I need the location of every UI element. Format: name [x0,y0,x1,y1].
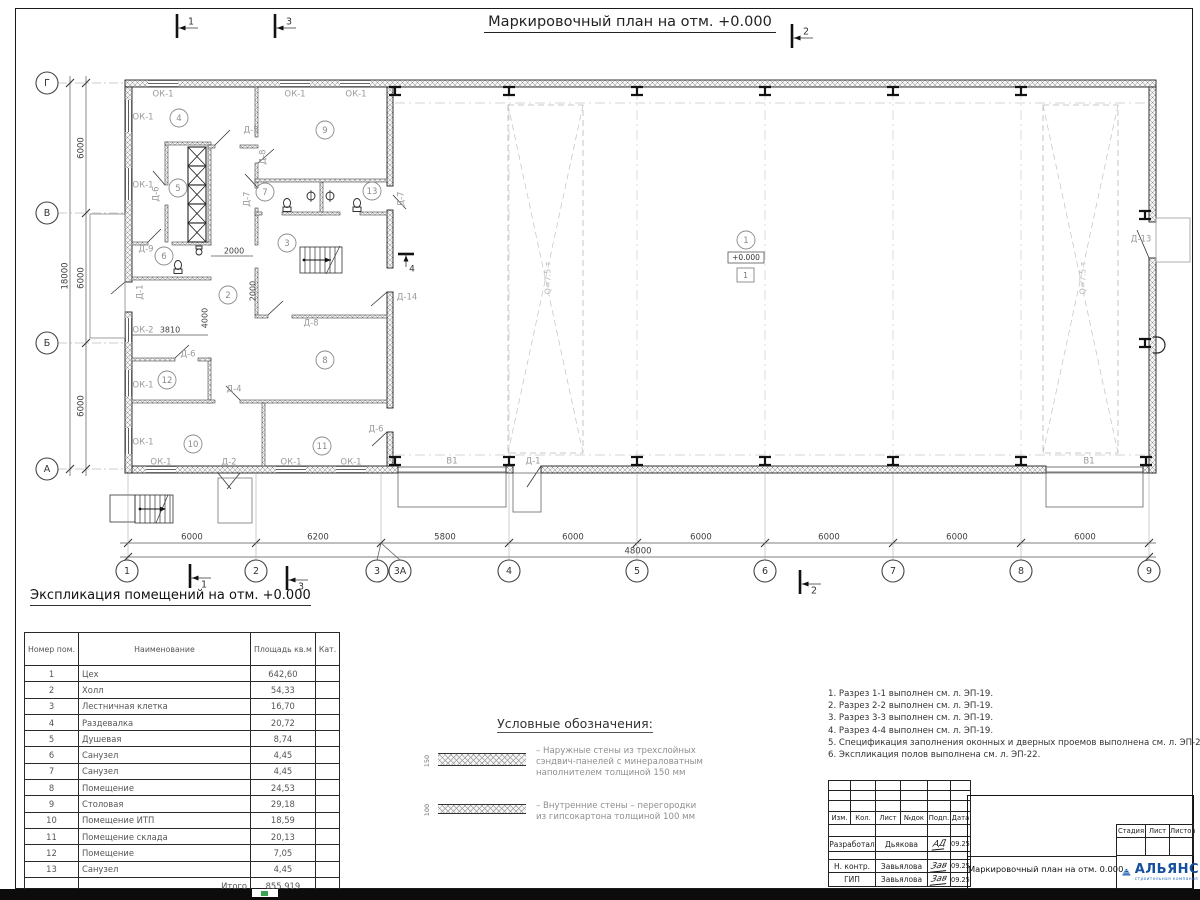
explication-table: Номер пом.НаименованиеПлощадь кв.мКат. 1… [24,632,340,894]
dim-label: 6000 [690,533,712,543]
expl-cell [315,731,339,747]
scan-edge-bar [0,889,1200,900]
opening-label: Д-1 [136,284,146,299]
dimension-lines: 6000620058006000600060006000600048000600… [58,76,1156,561]
expl-cell [315,812,339,828]
section-flag-number: 3 [286,17,292,28]
title-block: Изм.Кол.Лист№докПодп.ДатаРазработалДьяко… [828,780,1192,888]
shower-stall [188,204,206,223]
door-leaf [371,292,387,306]
plan-labels: ОК-1ОК-1ОК-1ОК-1ОК-1ОК-2ОК-1ОК-1ОК-1Д-2О… [132,90,1151,468]
tb-cell [829,791,851,801]
axis-bubble: Г [36,72,58,94]
room-number: 4 [170,109,188,127]
entrance-porch [218,478,252,523]
stair-exterior [110,495,173,523]
stage-header-cell: Лист [1145,825,1169,837]
room-number: 10 [184,435,202,453]
legend-exterior-wall-symbol [438,753,526,766]
interior-wall [360,212,387,215]
expl-cell: Санузел [78,763,250,779]
inner-dim-label: 4000 [201,308,210,328]
expl-cell: 10 [25,812,79,828]
tb-cell [901,801,928,812]
expl-cell: Помещение [78,780,250,796]
axis-bubble: 6 [754,560,776,582]
opening-label: Д-8 [259,149,269,164]
zone-number: 1 [743,271,748,280]
tb-cell [876,781,901,791]
section-flag-number: 2 [811,586,817,597]
expl-cell [315,845,339,861]
axis-bubble-label: 6 [762,566,768,577]
expl-row: 2Холл54,33 [25,682,340,698]
opening-label: Д-7 [397,191,407,206]
expl-row: 12Помещение7,05 [25,845,340,861]
opening-label: ОК-1 [345,90,366,100]
title-block-divider [968,856,1116,857]
interior-wall [255,179,387,182]
expl-cell: Помещение склада [78,828,250,844]
axis-bubble-label: Г [44,78,50,89]
floor-plan-drawing: 6000620058006000600060006000600048000600… [0,0,1200,620]
opening-label: В1 [446,457,457,467]
axis-bubble: 5 [626,560,648,582]
room-number-text: 4 [176,114,181,124]
interior-wall [165,142,168,185]
opening-label: Д-9 [138,245,153,255]
room-number: 3 [278,234,296,252]
window [125,100,132,132]
tb-header-cell: Лист [876,812,901,825]
tb-cell [901,781,928,791]
axis-bubble-label: 1 [124,566,130,577]
door-leaf [111,282,125,294]
expl-cell: 6 [25,747,79,763]
opening-label: Д-6 [368,425,383,435]
room-number-text: 2 [225,291,230,301]
tb-role: Н. контр. [829,860,876,873]
section-flag-number: 1 [188,17,194,28]
door-leaf [153,171,165,185]
tb-cell [829,825,876,837]
expl-cell: 11 [25,828,79,844]
axis-bubble-label: 9 [1146,566,1152,577]
opening-label: ОК-1 [284,90,305,100]
door-leaf [148,229,161,242]
expl-cell [315,714,339,730]
room-number: 8 [316,351,334,369]
company-logo: АЛЬЯНС строительная компания [1116,854,1199,889]
signature: Зав [930,860,949,873]
tb-header-cell: Кол. [851,812,876,825]
axis-bubble-label: 3 [374,566,380,577]
axis-bubble: 3А [389,560,411,582]
tb-cell [928,852,951,860]
expl-header-cell: Номер пом. [25,633,79,666]
exterior-wall [387,292,393,408]
opening-label: Д-13 [1131,235,1152,245]
expl-cell [315,763,339,779]
note-line: 5. Спецификация заполнения оконных и две… [828,737,1198,749]
expl-cell: 4,45 [250,763,315,779]
dim-label: 6200 [307,533,329,543]
axis-bubble: 2 [245,560,267,582]
explication-table-body: 1Цех642,602Холл54,333Лестничная клетка16… [25,666,340,894]
window [280,80,310,87]
opening-label: ОК-1 [150,458,171,468]
sink [307,190,315,202]
crane-capacity-label: Q=7.5 т [1079,261,1088,294]
axis-funnel [381,543,400,560]
expl-cell [315,666,339,682]
expl-cell [315,682,339,698]
toilet [196,246,202,255]
room-number: 13 [363,182,381,200]
opening-label: ОК-1 [132,181,153,191]
axis-bubble: В [36,202,58,224]
section-flag: 1 [177,14,198,38]
interior-wall [208,145,215,148]
interior-wall [208,358,211,403]
axis-bubble-label: 3А [394,566,407,577]
expl-cell: 3 [25,698,79,714]
opening-label: Д-2 [221,458,236,468]
columns [389,87,1152,465]
room-number-text: 11 [317,442,328,452]
expl-row: 13Санузел4,45 [25,861,340,877]
opening-label: Д-1 [525,457,540,467]
window [125,168,132,200]
company-name: АЛЬЯНС [1135,862,1199,877]
exterior-wall [387,87,393,186]
axis-bubble-label: 2 [253,566,259,577]
expl-cell: 29,18 [250,796,315,812]
interior-wall [132,400,215,403]
expl-cell: 642,60 [250,666,315,682]
expl-cell [315,747,339,763]
dim-label: 5800 [434,533,456,543]
interior-wall [282,212,340,215]
stage-header-cell: Листов [1169,825,1193,837]
exterior-wall [1149,258,1156,473]
interior-wall [165,142,211,145]
walls [125,80,1156,473]
room-number-text: 7 [262,188,267,198]
shower-stall [188,185,206,204]
expl-cell: 8 [25,780,79,796]
tb-cell [928,791,951,801]
stage-value-cell [1117,837,1145,855]
window [125,318,132,342]
axis-bubble: Б [36,332,58,354]
room-number: 1 [737,231,755,249]
interior-wall [240,400,387,403]
expl-row: 3Лестничная клетка16,70 [25,698,340,714]
expl-row: 1Цех642,60 [25,666,340,682]
tb-cell [851,801,876,812]
side-porch [1156,218,1190,262]
legend-exterior-wall-text: – Наружные стены из трехслойных сэндвич-… [536,746,703,779]
expl-header-cell: Площадь кв.м [250,633,315,666]
expl-row: 8Помещение24,53 [25,780,340,796]
column-ibeam [503,457,515,465]
expl-cell: Санузел [78,861,250,877]
expl-row: 9Столовая29,18 [25,796,340,812]
room-number-text: 1 [743,236,748,246]
expl-cell: 16,70 [250,698,315,714]
axis-bubble: 3 [366,560,388,582]
room-number-text: 6 [161,252,166,262]
exterior-wall [541,466,1046,473]
dim-label: 6000 [562,533,584,543]
expl-cell: 5 [25,731,79,747]
interior-wall [198,358,211,361]
logo-triangle-icon [1122,863,1131,881]
expl-cell: 20,72 [250,714,315,730]
expl-cell: Холл [78,682,250,698]
room-number-text: 12 [162,376,173,386]
tb-role: Разработал [829,837,876,852]
expl-cell: 18,59 [250,812,315,828]
opening-label: В1 [1083,457,1094,467]
tb-cell [876,791,901,801]
expl-cell: 4 [25,714,79,730]
expl-cell: 1 [25,666,79,682]
inner-dim-label: 3810 [160,326,180,335]
door-leaf [218,473,231,489]
tb-name: Завьялова [876,860,928,873]
section-flag: 3 [275,14,296,38]
room-number-text: 3 [284,239,289,249]
expl-cell [315,698,339,714]
tb-cell [876,825,928,837]
expl-row: 4Раздевалка20,72 [25,714,340,730]
axis-bubble: 8 [1010,560,1032,582]
exterior-wall [1149,87,1156,222]
dim-label: 6000 [818,533,840,543]
expl-header-cell: Кат. [315,633,339,666]
expl-cell: 7,05 [250,845,315,861]
window [340,80,370,87]
dim-total-label: 48000 [624,547,651,557]
expl-row: 10Помещение ИТП18,59 [25,812,340,828]
crane-zones [508,105,1118,453]
expl-cell: Помещение ИТП [78,812,250,828]
axis-bubble: 1 [116,560,138,582]
stage-value-cell [1169,837,1193,855]
opening-label: ОК-1 [340,458,361,468]
expl-cell: 54,33 [250,682,315,698]
opening-label: Д-8 [303,319,318,329]
legend-dim-150: 150 [423,755,431,767]
elevation-value: +0.000 [732,253,760,262]
elevation-marker: +0.0001 [728,252,764,282]
expl-cell [315,861,339,877]
room-number: 12 [158,371,176,389]
axis-bubble: 7 [882,560,904,582]
note-line: 1. Разрез 1-1 выполнен см. л. ЭП-19. [828,688,1198,700]
expl-row: 5Душевая8,74 [25,731,340,747]
opening-label: ОК-1 [132,438,153,448]
expl-cell: Помещение [78,845,250,861]
opening-label: Д-6 [152,186,162,201]
opening-label: ОК-1 [132,113,153,123]
section-flag-number: 4 [409,265,415,275]
legend-interior-wall-symbol [438,804,526,814]
column-ibeam [759,87,771,95]
door-leaf [527,466,541,487]
plan-title: Маркировочный план на отм. +0.000 [430,14,830,30]
opening-label: Д-6 [180,350,195,360]
tb-cell [851,781,876,791]
stage-header-cell: Стадия [1117,825,1145,837]
toilet [174,261,182,274]
tb-sign: АД [928,837,951,852]
dim-total-label: 18000 [61,262,71,289]
expl-cell: 13 [25,861,79,877]
door-leaf [268,301,283,315]
stage-value-cell [1145,837,1169,855]
expl-row: 7Санузел4,45 [25,763,340,779]
interior-wall [255,315,268,318]
expl-row: 11Помещение склада20,13 [25,828,340,844]
tb-cell [876,801,901,812]
inner-dim-label: 2000 [249,281,258,301]
stair-room3 [300,246,342,274]
opening-label: Д-5 [243,126,258,136]
tb-sign: Зав [928,860,951,873]
tb-cell [876,852,928,860]
column-ibeam [1015,457,1027,465]
expl-cell: 12 [25,845,79,861]
room-number: 9 [316,121,334,139]
opening-label: ОК-2 [132,326,153,336]
tb-sign: Зав [928,873,951,887]
dim-label: 6000 [77,137,87,159]
note-line: 6. Экспликация полов выполнена см. л. ЭП… [828,749,1198,761]
expl-cell: Столовая [78,796,250,812]
tb-cell [928,781,951,791]
shower-stall [188,223,206,242]
expl-row: 6Санузел4,45 [25,747,340,763]
opening-label: Д-14 [397,293,418,303]
opening-label: Д-7 [243,191,253,206]
tb-cell [851,791,876,801]
interior-wall [255,215,258,245]
expl-cell: Лестничная клетка [78,698,250,714]
toilet [283,199,291,212]
scan-green-mark [261,891,268,896]
tb-cell [829,801,851,812]
axis-bubble-label: 5 [634,566,640,577]
expl-cell [315,828,339,844]
title-block-right: Маркировочный план на отм. 0.000 СтадияЛ… [967,795,1194,890]
opening-label: Д-4 [226,385,241,395]
dim-label: 6000 [77,395,87,417]
axis-bubble-label: 4 [506,566,512,577]
interior-wall [132,358,175,361]
dim-label: 6000 [946,533,968,543]
room-number-text: 8 [322,356,327,366]
section-flag: 1 [190,564,211,591]
note-line: 3. Разрез 3-3 выполнен см. л. ЭП-19. [828,712,1198,724]
expl-cell: Цех [78,666,250,682]
explication-table-header: Номер пом.НаименованиеПлощадь кв.мКат. [25,633,340,666]
tb-name: Завьялова [876,873,928,887]
window [125,370,132,396]
dim-label: 6000 [77,267,87,289]
tb-cell [928,801,951,812]
inner-dim-label: 2000 [224,247,244,256]
section-flags: 1321324 [177,14,821,597]
column-ibeam [887,87,899,95]
stage-box: СтадияЛистЛистов [1116,824,1194,856]
notes-list: 1. Разрез 1-1 выполнен см. л. ЭП-19.2. Р… [828,688,1198,761]
window [148,80,178,87]
room-number-text: 10 [188,440,199,450]
expl-cell: Раздевалка [78,714,250,730]
tb-header-cell: Изм. [829,812,851,825]
dim-label: 6000 [1074,533,1096,543]
expl-cell: 4,45 [250,861,315,877]
tb-cell [951,781,971,791]
tb-cell [829,852,876,860]
interior-wall [132,277,211,280]
room-number: 6 [155,247,173,265]
column-ibeam [887,457,899,465]
crane-capacity-label: Q=7.5 т [544,261,553,294]
column-ibeam [631,457,643,465]
axis-bubble-label: 8 [1018,566,1024,577]
axis-bubble: 9 [1138,560,1160,582]
exterior-wall [387,210,393,268]
column-ibeam [631,87,643,95]
axis-bubble-label: В [44,208,51,219]
title-block-signature-table: Изм.Кол.Лист№докПодп.ДатаРазработалДьяко… [828,780,971,887]
legend-interior-wall-text: – Внутренние стены – перегородки из гипс… [536,801,696,823]
expl-cell: 8,74 [250,731,315,747]
interior-wall [320,182,323,215]
tb-cell [928,825,951,837]
interior-wall [262,403,265,466]
note-line: 4. Разрез 4-4 выполнен см. л. ЭП-19. [828,725,1198,737]
gate-recess [1046,467,1143,507]
room-number-text: 13 [367,187,378,197]
company-subtitle: строительная компания [1135,877,1199,882]
room-number-text: 5 [175,184,180,194]
legend-dim-100: 100 [423,804,431,816]
explication-title: Экспликация помещений на отм. +0.000 [30,588,311,603]
axis-bubble: А [36,458,58,480]
left-porch [90,214,125,338]
tb-name: Дьякова [876,837,928,852]
tb-cell [901,791,928,801]
tb-cell [829,781,851,791]
note-line: 2. Разрез 2-2 выполнен см. л. ЭП-19. [828,700,1198,712]
expl-header-cell: Наименование [78,633,250,666]
expl-cell: Санузел [78,747,250,763]
expl-cell: 20,13 [250,828,315,844]
expl-cell: 24,53 [250,780,315,796]
signature: Зав [930,873,949,886]
interior-wall [255,212,262,215]
dim-label: 6000 [181,533,203,543]
room-number: 7 [256,183,274,201]
expl-cell [315,796,339,812]
expl-cell: 7 [25,763,79,779]
axis-bubble-label: Б [44,338,51,349]
